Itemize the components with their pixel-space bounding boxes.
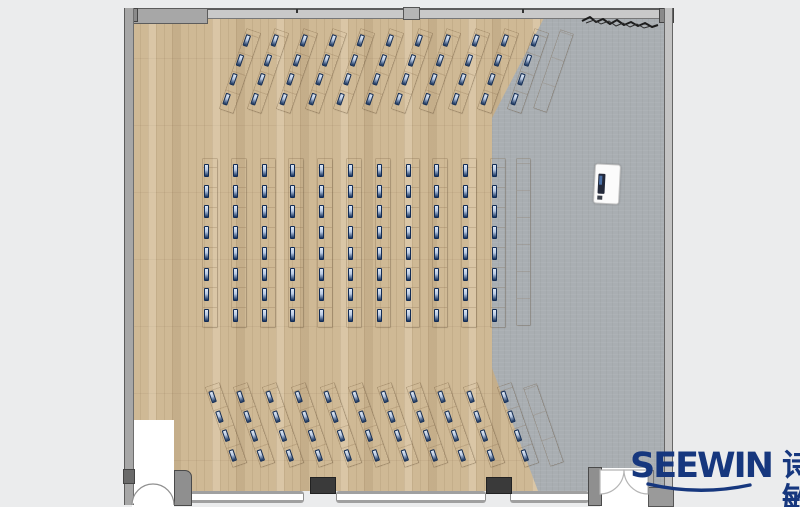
workstation-monitor-icon xyxy=(520,449,529,462)
workstation-monitor-icon xyxy=(492,226,497,239)
desk-row xyxy=(232,159,246,327)
workstation-monitor-icon xyxy=(463,268,468,281)
workstation-monitor-icon xyxy=(492,185,497,198)
workstation-monitor-icon xyxy=(348,185,353,198)
workstation-monitor-icon xyxy=(337,93,346,106)
desk-row xyxy=(289,159,303,327)
workstation-monitor-icon xyxy=(264,54,273,67)
workstation-monitor-icon xyxy=(434,185,439,198)
workstation-monitor-icon xyxy=(204,309,209,322)
workstation-monitor-icon xyxy=(262,247,267,260)
workstation-monitor-icon xyxy=(319,268,324,281)
side-table xyxy=(517,159,530,325)
workstation-monitor-icon xyxy=(290,185,295,198)
workstation-monitor-icon xyxy=(319,226,324,239)
workstation-monitor-icon xyxy=(472,34,481,47)
workstation-monitor-icon xyxy=(434,164,439,177)
white-cabinet xyxy=(593,163,621,204)
window-tick xyxy=(296,9,298,13)
workstation-monitor-icon xyxy=(308,93,317,106)
workstation-monitor-icon xyxy=(466,390,475,403)
workstation-monitor-icon xyxy=(429,73,438,86)
workstation-monitor-icon xyxy=(492,309,497,322)
workstation-monitor-icon xyxy=(348,205,353,218)
workstation-monitor-icon xyxy=(348,226,353,239)
workstation-monitor-icon xyxy=(500,34,509,47)
workstation-monitor-icon xyxy=(233,226,238,239)
workstation-monitor-icon xyxy=(250,429,259,442)
workstation-monitor-icon xyxy=(204,185,209,198)
workstation-monitor-icon xyxy=(463,247,468,260)
workstation-monitor-icon xyxy=(407,54,416,67)
workstation-monitor-icon xyxy=(365,429,374,442)
workstation-monitor-icon xyxy=(372,449,381,462)
left-wall-post xyxy=(123,469,135,484)
workstation-monitor-icon xyxy=(463,226,468,239)
workstation-monitor-icon xyxy=(243,410,252,423)
workstation-monitor-icon xyxy=(406,268,411,281)
window-tick xyxy=(522,9,524,13)
workstation-monitor-icon xyxy=(492,164,497,177)
workstation-monitor-icon xyxy=(438,390,447,403)
workstation-monitor-icon xyxy=(494,54,503,67)
cabinet-panel xyxy=(597,174,605,194)
workstation-monitor-icon xyxy=(406,185,411,198)
workstation-monitor-icon xyxy=(321,54,330,67)
structural-column xyxy=(310,477,336,494)
workstation-monitor-icon xyxy=(250,93,259,106)
workstation-monitor-icon xyxy=(257,73,266,86)
workstation-monitor-icon xyxy=(463,309,468,322)
workstation-monitor-icon xyxy=(377,205,382,218)
workstation-monitor-icon xyxy=(377,164,382,177)
workstation-monitor-icon xyxy=(473,410,482,423)
workstation-monitor-icon xyxy=(401,73,410,86)
desk-row xyxy=(376,159,390,327)
workstation-monitor-icon xyxy=(492,205,497,218)
workstation-monitor-icon xyxy=(463,185,468,198)
workstation-monitor-icon xyxy=(480,93,489,106)
desk-row xyxy=(491,159,505,327)
workstation-monitor-icon xyxy=(315,73,324,86)
workstation-monitor-icon xyxy=(451,93,460,106)
workstation-monitor-icon xyxy=(530,34,539,47)
desk-row xyxy=(347,159,361,327)
logo-brand-text: SEEWIN xyxy=(630,446,772,486)
workstation-monitor-icon xyxy=(436,54,445,67)
workstation-monitor-icon xyxy=(319,288,324,301)
workstation-monitor-icon xyxy=(465,54,474,67)
workstation-monitor-icon xyxy=(406,288,411,301)
workstation-monitor-icon xyxy=(350,54,359,67)
workstation-monitor-icon xyxy=(262,205,267,218)
window-mullion xyxy=(403,7,420,20)
workstation-monitor-icon xyxy=(279,93,288,106)
door-frame-post xyxy=(588,467,602,506)
workstation-monitor-icon xyxy=(286,449,295,462)
workstation-monitor-icon xyxy=(406,309,411,322)
workstation-monitor-icon xyxy=(233,247,238,260)
workstation-monitor-icon xyxy=(265,390,274,403)
workstation-monitor-icon xyxy=(319,164,324,177)
workstation-monitor-icon xyxy=(290,309,295,322)
desk-row xyxy=(462,159,476,327)
workstation-monitor-icon xyxy=(233,309,238,322)
workstation-monitor-icon xyxy=(444,410,453,423)
desk-row xyxy=(261,159,275,327)
workstation-monitor-icon xyxy=(507,410,516,423)
workstation-monitor-icon xyxy=(233,164,238,177)
workstation-monitor-icon xyxy=(517,73,526,86)
logo-cjk-text: 诗敏 xyxy=(782,449,800,507)
workstation-monitor-icon xyxy=(290,164,295,177)
workstation-monitor-icon xyxy=(262,185,267,198)
workstation-monitor-icon xyxy=(377,185,382,198)
desk-row xyxy=(433,159,447,327)
floor-plan: SEEWIN 诗敏 xyxy=(0,0,800,507)
workstation-monitor-icon xyxy=(204,268,209,281)
workstation-monitor-icon xyxy=(204,288,209,301)
workstation-monitor-icon xyxy=(423,93,432,106)
workstation-monitor-icon xyxy=(463,164,468,177)
bottom-window-band xyxy=(336,491,486,503)
workstation-monitor-icon xyxy=(379,54,388,67)
workstation-monitor-icon xyxy=(463,288,468,301)
workstation-monitor-icon xyxy=(463,205,468,218)
workstation-monitor-icon xyxy=(524,54,533,67)
workstation-monitor-icon xyxy=(443,34,452,47)
workstation-monitor-icon xyxy=(343,73,352,86)
workstation-monitor-icon xyxy=(279,429,288,442)
workstation-monitor-icon xyxy=(406,226,411,239)
workstation-monitor-icon xyxy=(204,205,209,218)
workstation-monitor-icon xyxy=(262,288,267,301)
workstation-monitor-icon xyxy=(358,410,367,423)
workstation-monitor-icon xyxy=(492,247,497,260)
workstation-monitor-icon xyxy=(487,73,496,86)
workstation-monitor-icon xyxy=(434,268,439,281)
workstation-monitor-icon xyxy=(262,268,267,281)
workstation-monitor-icon xyxy=(257,449,266,462)
workstation-monitor-icon xyxy=(319,205,324,218)
workstation-monitor-icon xyxy=(434,247,439,260)
workstation-monitor-icon xyxy=(458,73,467,86)
workstation-monitor-icon xyxy=(272,410,281,423)
workstation-monitor-icon xyxy=(377,247,382,260)
workstation-monitor-icon xyxy=(394,93,403,106)
workstation-monitor-icon xyxy=(290,268,295,281)
entrance-vestibule xyxy=(132,420,174,507)
workstation-monitor-icon xyxy=(348,309,353,322)
workstation-monitor-icon xyxy=(290,288,295,301)
workstation-monitor-icon xyxy=(233,288,238,301)
workstation-monitor-icon xyxy=(434,205,439,218)
workstation-monitor-icon xyxy=(233,205,238,218)
workstation-monitor-icon xyxy=(328,34,337,47)
workstation-monitor-icon xyxy=(514,429,523,442)
workstation-monitor-icon xyxy=(377,268,382,281)
workstation-monitor-icon xyxy=(385,34,394,47)
brand-logo: SEEWIN 诗敏 xyxy=(630,449,800,507)
workstation-monitor-icon xyxy=(458,449,467,462)
left-wall xyxy=(124,8,134,505)
workstation-monitor-icon xyxy=(406,164,411,177)
workstation-monitor-icon xyxy=(377,309,382,322)
workstation-monitor-icon xyxy=(271,34,280,47)
workstation-monitor-icon xyxy=(500,390,509,403)
workstation-monitor-icon xyxy=(377,288,382,301)
workstation-monitor-icon xyxy=(204,226,209,239)
desk-row xyxy=(318,159,332,327)
workstation-monitor-icon xyxy=(480,429,489,442)
workstation-monitor-icon xyxy=(451,429,460,442)
workstation-monitor-icon xyxy=(414,34,423,47)
workstation-monitor-icon xyxy=(233,185,238,198)
workstation-monitor-icon xyxy=(357,34,366,47)
workstation-monitor-icon xyxy=(486,449,495,462)
workstation-monitor-icon xyxy=(299,34,308,47)
workstation-monitor-icon xyxy=(348,288,353,301)
workstation-monitor-icon xyxy=(262,164,267,177)
workstation-monitor-icon xyxy=(286,73,295,86)
bottom-window-band xyxy=(190,491,304,503)
workstation-monitor-icon xyxy=(434,288,439,301)
workstation-monitor-icon xyxy=(348,268,353,281)
structural-column xyxy=(486,477,512,494)
workstation-monitor-icon xyxy=(290,226,295,239)
door-frame-post xyxy=(174,470,192,506)
workstation-monitor-icon xyxy=(262,226,267,239)
workstation-monitor-icon xyxy=(290,205,295,218)
workstation-monitor-icon xyxy=(290,247,295,260)
workstation-monitor-icon xyxy=(319,309,324,322)
workstation-monitor-icon xyxy=(510,93,519,106)
workstation-monitor-icon xyxy=(434,309,439,322)
workstation-monitor-icon xyxy=(204,247,209,260)
cabinet-foot xyxy=(597,196,602,200)
workstation-monitor-icon xyxy=(406,205,411,218)
workstation-monitor-icon xyxy=(377,226,382,239)
workstation-monitor-icon xyxy=(387,410,396,423)
workstation-monitor-icon xyxy=(406,247,411,260)
workstation-monitor-icon xyxy=(351,390,360,403)
desk-row xyxy=(203,159,217,327)
workstation-monitor-icon xyxy=(492,268,497,281)
workstation-monitor-icon xyxy=(372,73,381,86)
workstation-monitor-icon xyxy=(365,93,374,106)
workstation-monitor-icon xyxy=(348,164,353,177)
logo-swoosh-icon xyxy=(644,482,754,494)
workstation-monitor-icon xyxy=(319,247,324,260)
right-wall xyxy=(664,8,673,505)
workstation-monitor-icon xyxy=(492,288,497,301)
workstation-monitor-icon xyxy=(237,390,246,403)
desk-row xyxy=(405,159,419,327)
workstation-monitor-icon xyxy=(204,164,209,177)
bottom-window-band xyxy=(510,491,589,503)
workstation-monitor-icon xyxy=(293,54,302,67)
workstation-monitor-icon xyxy=(319,185,324,198)
workstation-monitor-icon xyxy=(348,247,353,260)
workstation-monitor-icon xyxy=(233,268,238,281)
workstation-monitor-icon xyxy=(434,226,439,239)
workstation-monitor-icon xyxy=(262,309,267,322)
